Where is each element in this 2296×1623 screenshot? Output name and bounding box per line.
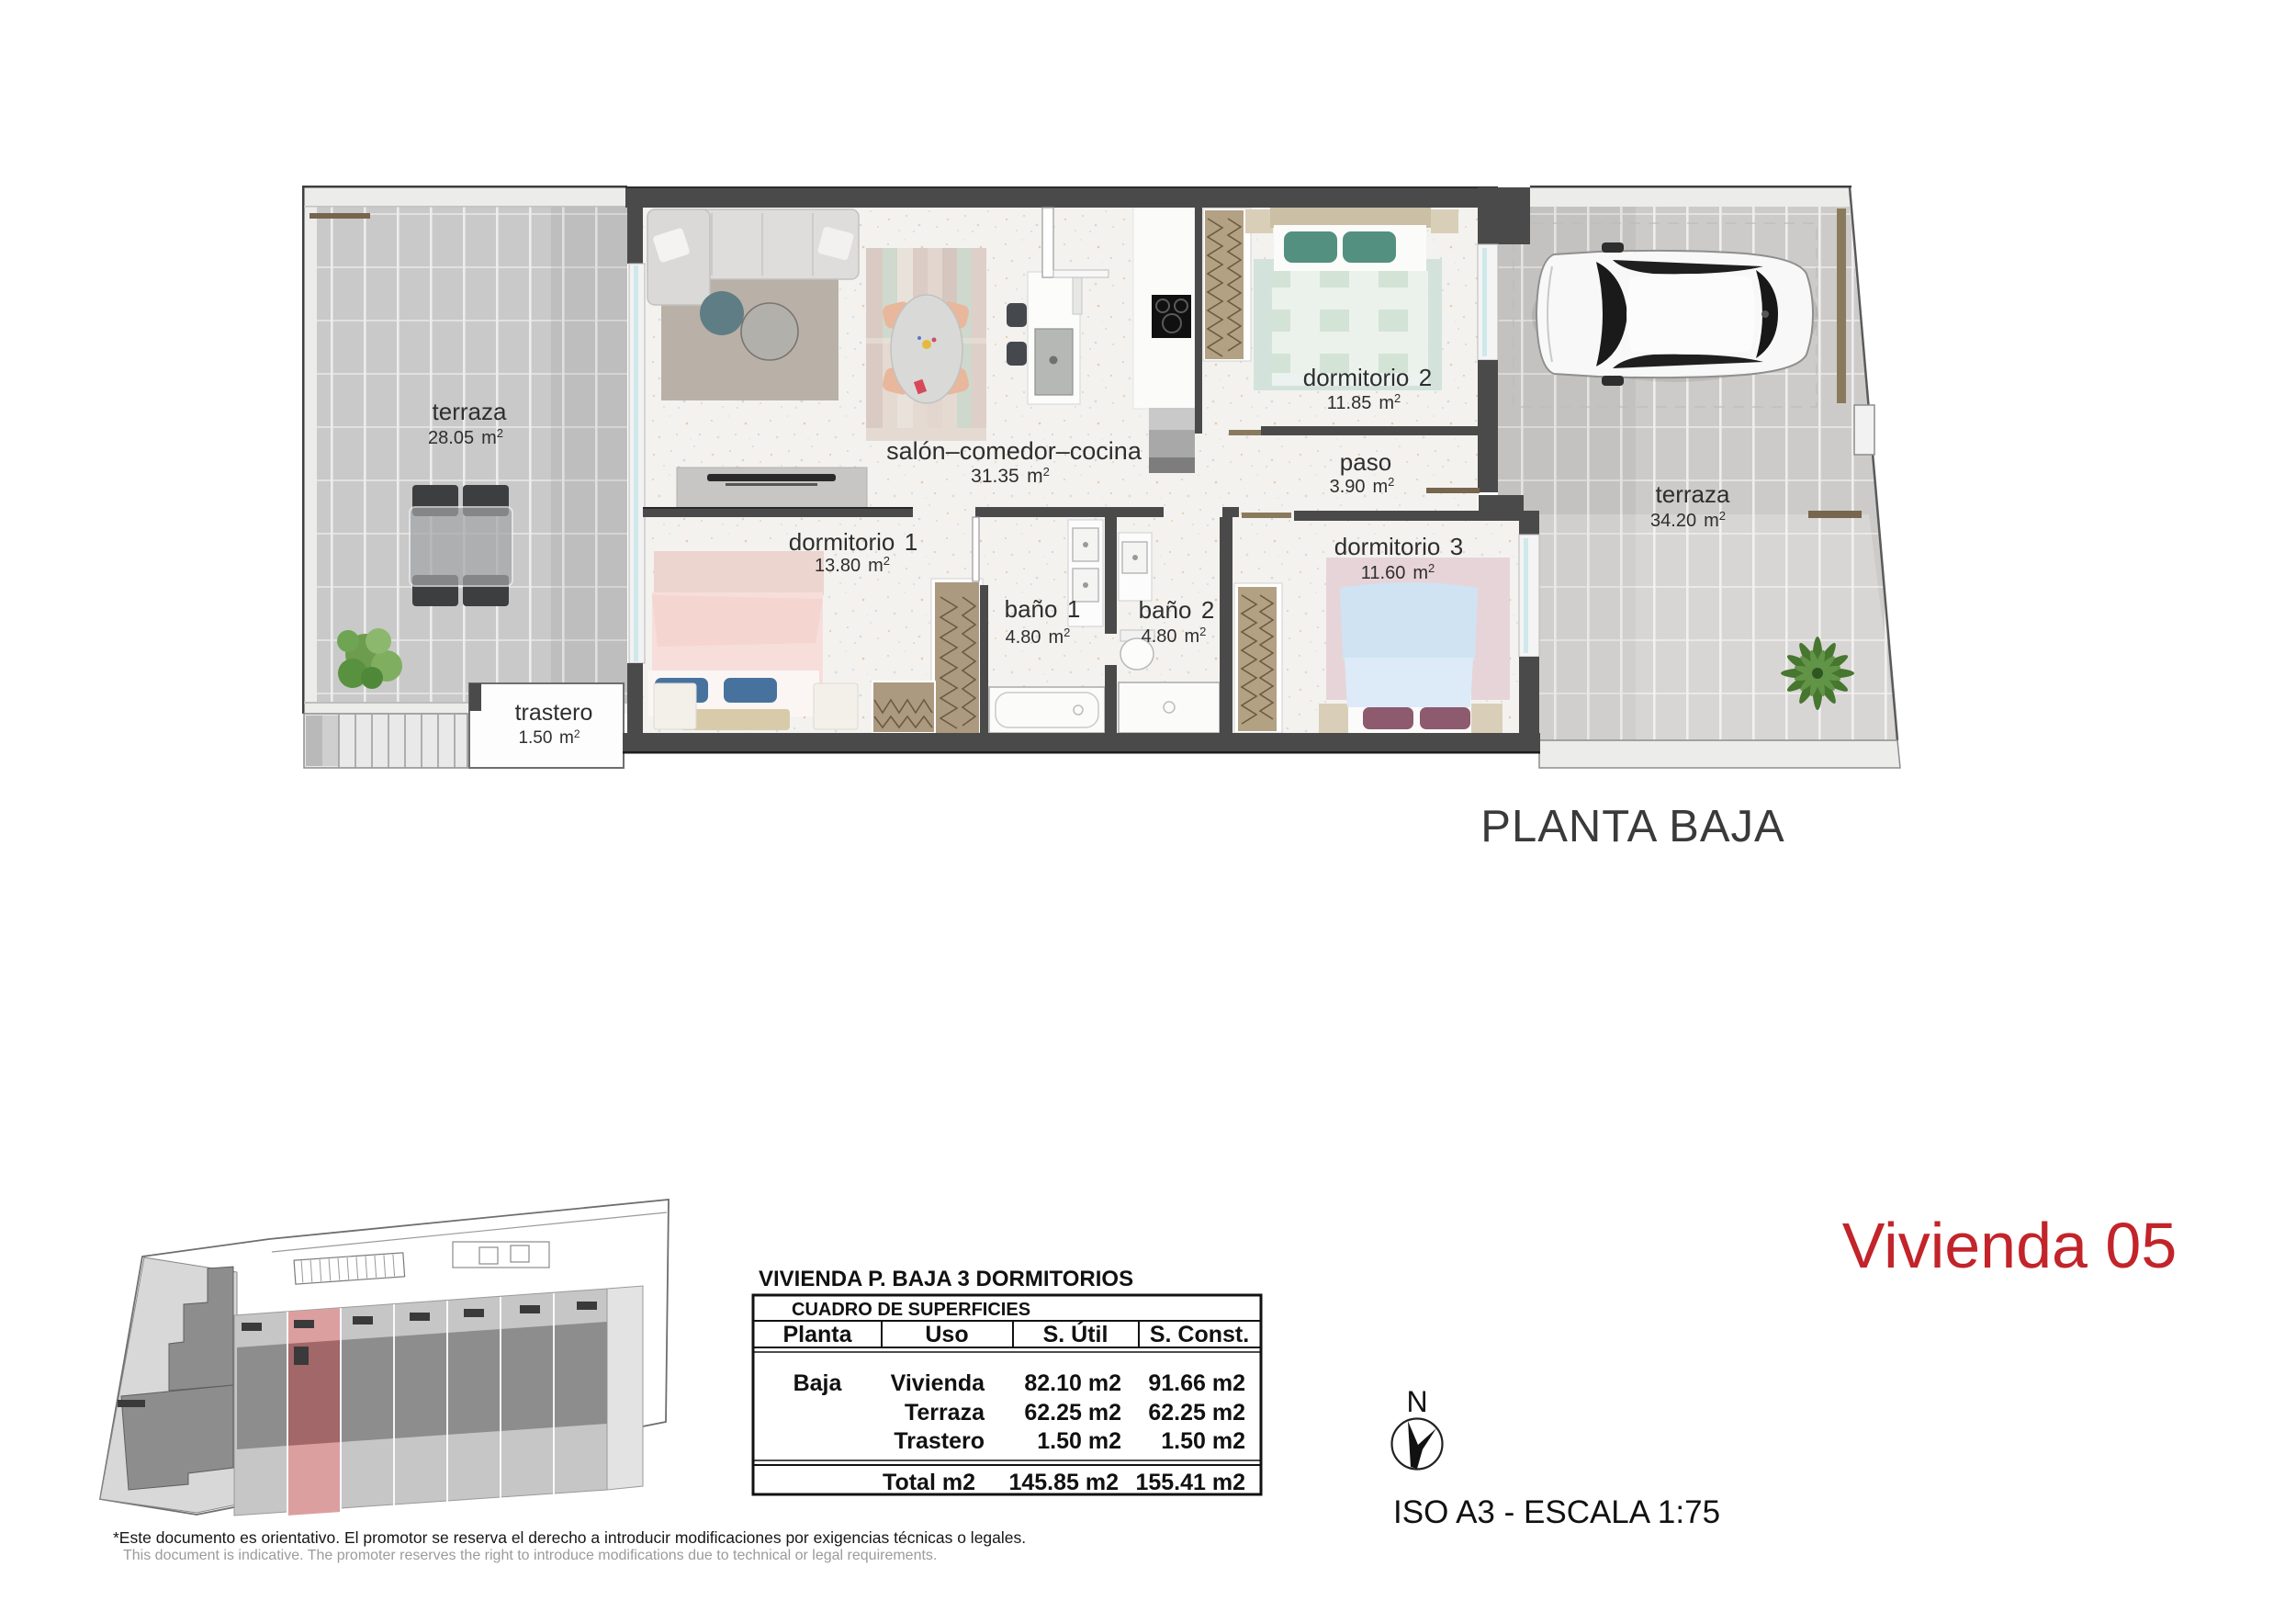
svg-text:N: N <box>1406 1385 1427 1418</box>
svg-text:baño 1: baño 1 <box>1005 595 1081 623</box>
svg-text:11.60 m2: 11.60 m2 <box>1361 561 1435 583</box>
svg-text:34.20 m2: 34.20 m2 <box>1650 509 1726 531</box>
svg-text:dormitorio 3: dormitorio 3 <box>1334 533 1463 560</box>
svg-text:S. Const.: S. Const. <box>1150 1322 1249 1347</box>
svg-text:paso: paso <box>1340 448 1391 476</box>
svg-text:Total m2: Total m2 <box>883 1470 975 1495</box>
svg-text:1.50 m2: 1.50 m2 <box>1037 1428 1121 1454</box>
svg-text:1.50 m2: 1.50 m2 <box>518 727 580 748</box>
svg-text:145.85 m2: 145.85 m2 <box>1008 1470 1119 1495</box>
svg-text:82.10 m2: 82.10 m2 <box>1024 1370 1121 1396</box>
svg-text:baño 2: baño 2 <box>1139 596 1215 624</box>
svg-text:3.90 m2: 3.90 m2 <box>1330 475 1395 497</box>
svg-text:dormitorio 2: dormitorio 2 <box>1303 364 1432 391</box>
svg-text:28.05 m2: 28.05 m2 <box>428 426 503 448</box>
svg-text:This document is indicative. T: This document is indicative. The promote… <box>123 1548 937 1563</box>
svg-text:1.50 m2: 1.50 m2 <box>1161 1428 1245 1454</box>
svg-text:62.25 m2: 62.25 m2 <box>1148 1400 1245 1426</box>
svg-text:Trastero: Trastero <box>894 1428 985 1454</box>
svg-text:Uso: Uso <box>925 1322 968 1347</box>
svg-text:Vivienda: Vivienda <box>891 1370 985 1396</box>
svg-text:trastero: trastero <box>515 700 593 726</box>
svg-text:terraza: terraza <box>1656 480 1730 508</box>
svg-text:91.66 m2: 91.66 m2 <box>1148 1370 1245 1396</box>
svg-text:Planta: Planta <box>782 1322 852 1347</box>
svg-text:*Este documento es orientativo: *Este documento es orientativo. El promo… <box>113 1528 1026 1547</box>
svg-text:VIVIENDA P. BAJA 3 DORMITORIOS: VIVIENDA P. BAJA 3 DORMITORIOS <box>759 1267 1133 1291</box>
svg-text:31.35 m2: 31.35 m2 <box>971 465 1050 487</box>
svg-text:4.80 m2: 4.80 m2 <box>1006 626 1071 648</box>
svg-text:PLANTA BAJA: PLANTA BAJA <box>1480 802 1784 851</box>
svg-text:62.25 m2: 62.25 m2 <box>1024 1400 1121 1426</box>
svg-text:terraza: terraza <box>433 398 507 425</box>
svg-text:S. Útil: S. Útil <box>1043 1320 1109 1347</box>
svg-text:Baja: Baja <box>793 1370 843 1396</box>
svg-text:11.85 m2: 11.85 m2 <box>1327 391 1401 413</box>
svg-text:13.80 m2: 13.80 m2 <box>815 554 890 576</box>
svg-text:155.41 m2: 155.41 m2 <box>1135 1470 1245 1495</box>
svg-text:4.80 m2: 4.80 m2 <box>1142 625 1207 647</box>
svg-text:CUADRO DE SUPERFICIES: CUADRO DE SUPERFICIES <box>792 1300 1030 1320</box>
svg-text:dormitorio 1: dormitorio 1 <box>789 528 917 556</box>
svg-text:Terraza: Terraza <box>905 1400 985 1426</box>
svg-text:Vivienda 05: Vivienda 05 <box>1842 1210 2178 1281</box>
svg-text:salón–comedor–cocina: salón–comedor–cocina <box>886 437 1142 465</box>
svg-text:ISO A3 - ESCALA 1:75: ISO A3 - ESCALA 1:75 <box>1393 1494 1720 1530</box>
